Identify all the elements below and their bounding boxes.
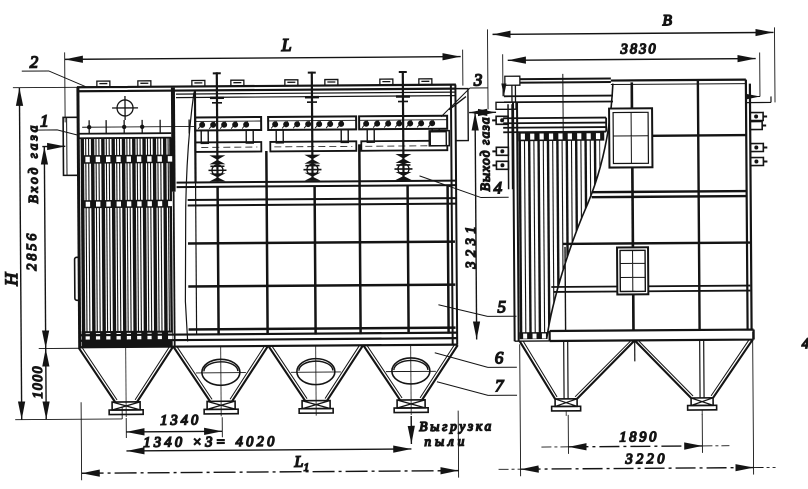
svg-text:6: 6	[495, 348, 504, 367]
svg-text:1: 1	[40, 111, 49, 130]
svg-text:2856: 2856	[25, 234, 40, 271]
svg-text:3830: 3830	[620, 41, 657, 57]
svg-text:Выход газа: Выход газа	[477, 117, 493, 191]
svg-text:L: L	[281, 35, 292, 55]
svg-text:3: 3	[473, 70, 483, 89]
svg-text:3220: 3220	[624, 451, 665, 467]
svg-text:5: 5	[497, 297, 506, 316]
svg-text:1: 1	[304, 462, 310, 474]
svg-text:L: L	[293, 454, 303, 471]
svg-text:4: 4	[802, 336, 808, 352]
svg-text:2: 2	[30, 53, 39, 72]
svg-text:В: В	[662, 12, 672, 29]
svg-text:Вход газа: Вход газа	[25, 125, 41, 203]
svg-text:1890: 1890	[619, 429, 657, 445]
svg-text:1000: 1000	[31, 367, 46, 399]
svg-text:Выгрузка: Выгрузка	[419, 418, 491, 434]
svg-text:1340: 1340	[160, 412, 199, 428]
svg-text:4: 4	[494, 178, 503, 197]
svg-text:3231: 3231	[464, 226, 479, 269]
svg-text:1340 ×3= 4020: 1340 ×3= 4020	[143, 434, 275, 451]
svg-text:7: 7	[495, 376, 505, 395]
svg-text:пыли: пыли	[424, 434, 464, 449]
svg-text:H: H	[1, 272, 21, 287]
